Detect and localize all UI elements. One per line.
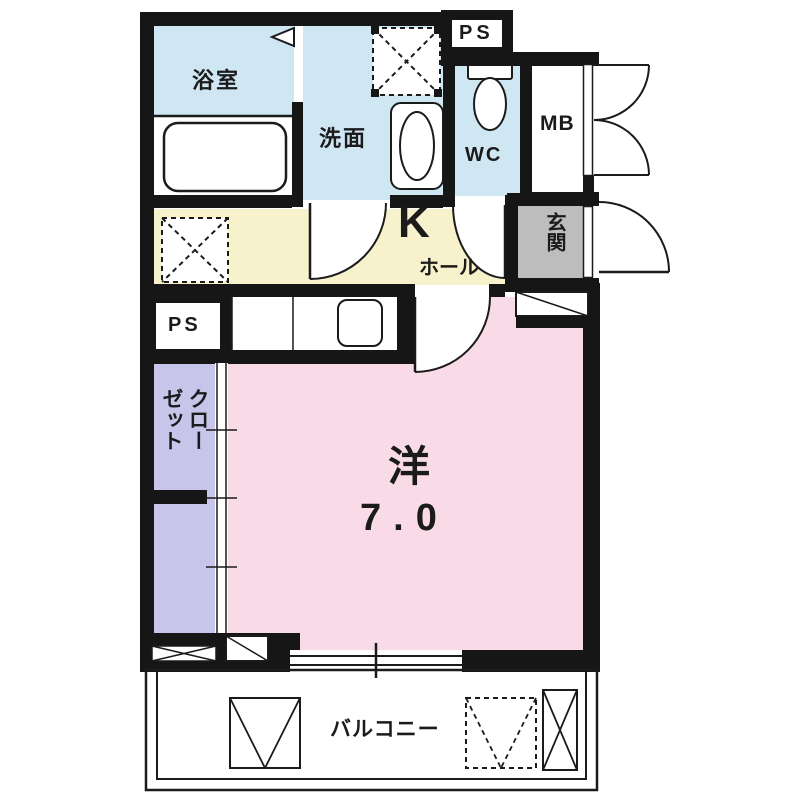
wall-bath-washroom [292,102,303,207]
balcony-dashed-box-rect [466,698,536,768]
bathroom-label: 浴室 [192,63,240,95]
shoe-cabinet [516,292,594,328]
washer-pan [373,28,440,95]
balcony-dashed-v2 [501,698,536,768]
western-room-size: 7.0 [360,497,449,540]
entrance-door-swing [599,202,669,272]
wall-mb-bottom-stub [583,175,594,195]
kitchen-sink [338,300,382,346]
entrance-door-jamb [584,207,593,278]
hall-label: ホール [419,251,479,280]
wall-bath-bottom [154,195,292,208]
wall-washroom-wc [443,52,455,207]
toilet-bowl [474,78,506,130]
balcony-dashed-v1 [466,698,501,768]
shoe-cabinet-base [516,316,594,328]
bathtub [164,123,286,191]
wall-top-outer [140,12,443,26]
western-room-label: 洋 [388,433,430,494]
closet-label: クローゼット [158,388,210,466]
balcony-label: バルコニー [330,713,440,743]
wall-entrance-left [505,195,518,285]
mb-door-jamb [584,65,593,176]
kitchen-counter [232,297,397,350]
washroom-label: 洗面 [319,121,367,153]
mb-label: MB [540,112,575,136]
ps-mid-label: PS [168,314,201,337]
floor-plan-drawing [0,0,800,800]
kitchen-label: K [398,198,430,248]
entrance-label: 玄関 [540,212,569,268]
balcony-hatch-box [230,698,300,768]
wall-wc-mb [520,52,532,192]
wall-right-outer [583,283,600,672]
exterior-doors [594,65,669,272]
wc-label: WC [465,144,502,167]
fridge-space [162,218,228,282]
floor-plan: 浴室 洗面 WC PS MB K ホール 玄関 PS クローゼット 洋 7.0 … [0,0,800,800]
wall-bottom-right [462,650,600,672]
balcony-dashed-box [466,698,536,768]
closet-divider-stub [154,490,207,504]
wall-hall-room-stub [489,284,505,297]
wash-basin [400,112,434,180]
ps-top-label: PS [459,22,494,45]
